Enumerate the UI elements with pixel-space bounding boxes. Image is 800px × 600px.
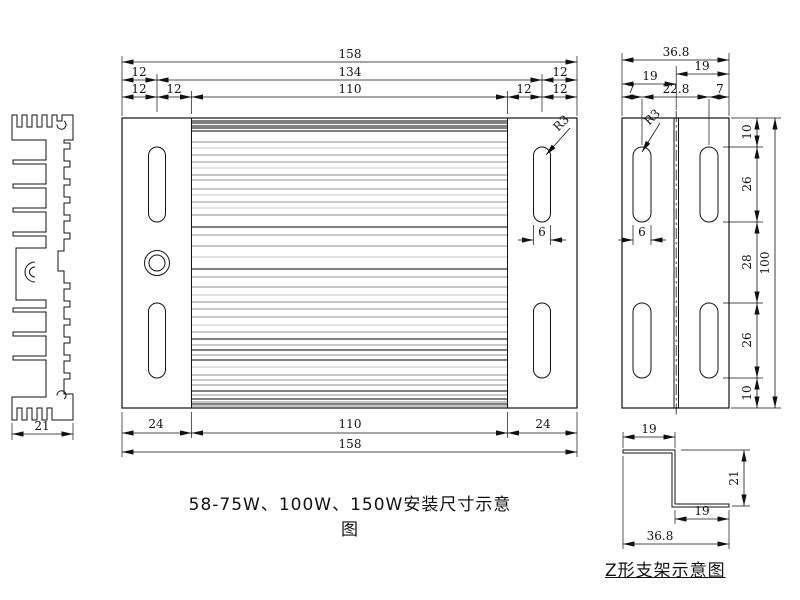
- dim-label: 12: [552, 82, 567, 96]
- radius-label: R3: [641, 106, 663, 128]
- dim-label: 19: [641, 422, 656, 436]
- side-slot-top-left: [633, 147, 651, 222]
- z-dim-height: 21: [681, 450, 750, 506]
- dim-label: 24: [535, 417, 551, 431]
- side-plate-outline: [622, 118, 729, 408]
- dim-label: 12: [166, 82, 181, 96]
- main-dim-total-bottom: 158: [122, 437, 577, 452]
- side-dim-total-height: 100: [758, 118, 775, 408]
- dim-label: 100: [758, 252, 772, 275]
- profile-clip-feature: [25, 262, 35, 282]
- z-bracket-view: 19 21 19 36.8: [623, 422, 750, 549]
- mounting-hole-outer: [145, 251, 170, 276]
- slot-top-left: [149, 147, 166, 222]
- z-dim-bottom-total: 36.8: [623, 456, 729, 549]
- slot-width-label: 6: [638, 225, 646, 239]
- main-slot-width-dimension: 6: [518, 225, 566, 245]
- dim-label: 7: [716, 82, 724, 96]
- heatsink-profile-outline: [12, 115, 73, 420]
- dim-label: 158: [339, 437, 362, 451]
- side-slot-bottom-right: [700, 303, 718, 378]
- slot-bottom-left: [149, 303, 166, 378]
- z-bracket-outline: [623, 450, 729, 507]
- engineering-drawing-page: 21 158 12: [0, 0, 800, 600]
- main-caption: 58-75W、100W、150W安装尺寸示意图: [180, 490, 520, 540]
- heatsink-profile-view: 21: [12, 115, 73, 440]
- dim-label: 10: [740, 385, 754, 400]
- dim-label: 24: [148, 417, 164, 431]
- main-dim-bottom-chain: 24 110 24: [122, 417, 577, 433]
- dim-label: 12: [516, 82, 531, 96]
- dim-label: 12: [552, 65, 567, 79]
- side-top-extensions: [622, 53, 729, 145]
- profile-top-curl: [57, 121, 66, 129]
- dim-label: 110: [339, 417, 362, 431]
- dim-label: 36.8: [663, 45, 690, 59]
- slot-bottom-right: [534, 303, 551, 378]
- side-view: 36.8 19 19 7 22.8 7: [618, 45, 781, 415]
- dim-label: 28: [740, 254, 754, 269]
- side-dim-total-width: 36.8: [622, 45, 729, 60]
- main-dim-row3: 12 12 110 12 12: [122, 82, 577, 97]
- slot-width-label: 6: [538, 225, 546, 239]
- side-slot-top-right: [700, 147, 718, 222]
- dim-label: 134: [339, 65, 362, 79]
- dim-label: 36.8: [647, 529, 674, 543]
- dim-label: 19: [694, 59, 709, 73]
- side-dim-right-19: 19: [676, 59, 729, 74]
- slot-top-right: [534, 147, 551, 222]
- dim-label: 21: [727, 470, 741, 485]
- profile-bottom-curl: [57, 391, 66, 399]
- side-slot-radius-callout: R3: [641, 106, 663, 152]
- dim-label: 19: [694, 504, 709, 518]
- main-slot-radius-callout: R3: [546, 112, 572, 155]
- main-mounting-view: 158 12 134 12 12 12 110 12 12: [122, 47, 577, 457]
- side-slot-width-dimension: 6: [618, 225, 666, 245]
- dim-label: 19: [642, 69, 657, 83]
- mounting-hole-inner: [149, 255, 165, 271]
- main-dim-row2: 12 134 12: [122, 65, 577, 80]
- dim-label: 110: [339, 82, 362, 96]
- dim-label: 12: [131, 82, 146, 96]
- side-slot-bottom-left: [633, 303, 651, 378]
- dim-label: 7: [627, 82, 635, 96]
- main-dim-total-top: 158: [122, 47, 577, 62]
- side-dim-chain-right: 10 26 28 26 10: [740, 118, 757, 408]
- dim-label: 12: [131, 65, 146, 79]
- dim-label: 26: [740, 332, 754, 347]
- dim-label: 10: [740, 124, 754, 139]
- z-bracket-caption: Z形支架示意图: [605, 556, 726, 581]
- dim-label: 22.8: [663, 82, 690, 96]
- dim-label: 158: [339, 47, 362, 61]
- dim-label: 26: [740, 176, 754, 191]
- profile-width-label: 21: [34, 419, 49, 433]
- radius-label: R3: [550, 112, 572, 134]
- z-dim-top: 19: [623, 422, 675, 448]
- fin-area: [192, 121, 507, 406]
- profile-width-dimension: 21: [12, 419, 73, 440]
